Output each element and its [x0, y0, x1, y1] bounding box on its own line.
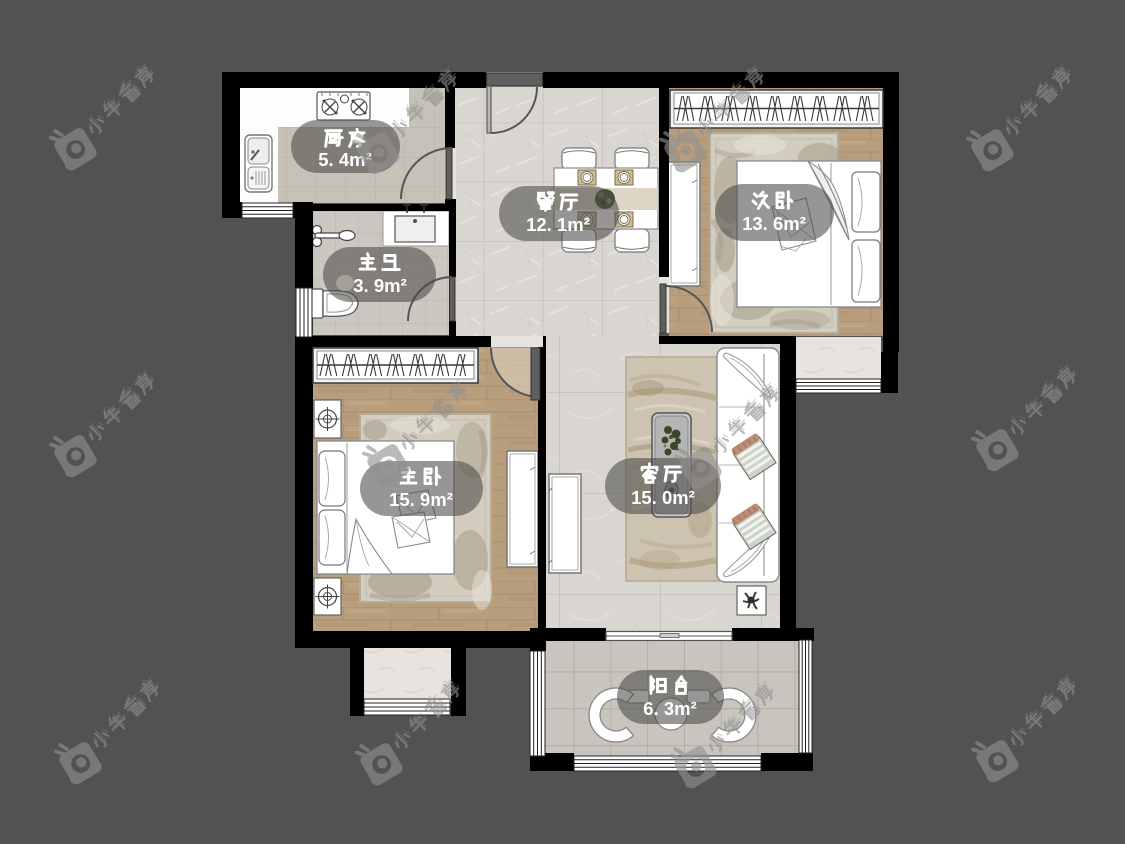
svg-text:12. 1m²: 12. 1m² — [526, 214, 590, 235]
svg-text:6. 3m²: 6. 3m² — [643, 698, 696, 719]
svg-text:15. 9m²: 15. 9m² — [389, 489, 453, 510]
svg-text:15. 0m²: 15. 0m² — [631, 487, 695, 508]
svg-text:3. 9m²: 3. 9m² — [353, 275, 406, 296]
svg-text:13. 6m²: 13. 6m² — [742, 213, 806, 234]
